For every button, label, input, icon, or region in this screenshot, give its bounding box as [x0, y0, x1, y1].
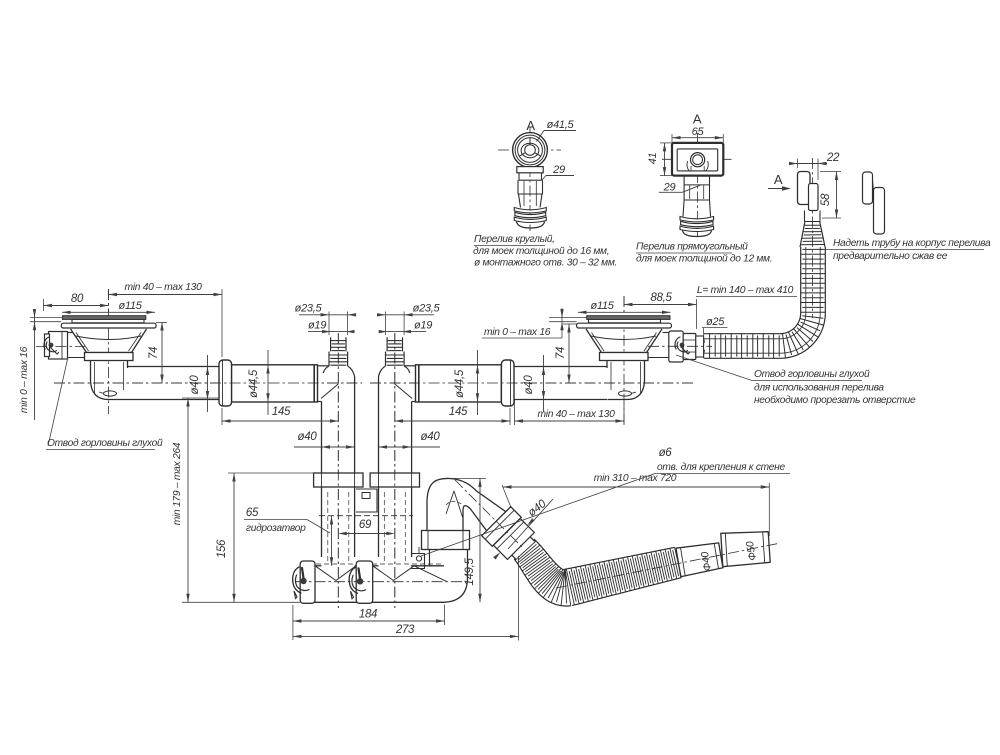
svg-text:ø6: ø6 [659, 447, 673, 459]
svg-text:для моек толщиной до 12 мм.: для моек толщиной до 12 мм. [636, 254, 772, 265]
svg-text:29: 29 [552, 164, 565, 176]
svg-text:65: 65 [692, 126, 705, 138]
svg-text:ø115: ø115 [590, 300, 614, 312]
svg-text:для моек толщиной до 16 мм,: для моек толщиной до 16 мм, [473, 246, 609, 257]
svg-text:min 40 – max 130: min 40 – max 130 [537, 409, 615, 420]
svg-text:58: 58 [820, 193, 832, 206]
svg-text:предварительно сжав ее: предварительно сжав ее [833, 251, 948, 262]
svg-text:для использования перелива: для использования перелива [754, 383, 884, 394]
svg-text:74: 74 [555, 347, 567, 359]
svg-text:A: A [774, 172, 783, 187]
svg-text:273: 273 [395, 624, 415, 636]
svg-text:min 310 – max 720: min 310 – max 720 [594, 473, 677, 484]
svg-text:ø монтажного отв. 30 – 32 мм.: ø монтажного отв. 30 – 32 мм. [474, 258, 617, 269]
svg-text:156: 156 [216, 539, 228, 558]
svg-text:184: 184 [359, 609, 377, 621]
svg-text:41: 41 [647, 153, 659, 165]
svg-text:22: 22 [826, 152, 840, 164]
svg-text:69: 69 [359, 519, 372, 531]
svg-text:ø40: ø40 [421, 431, 441, 443]
svg-text:A: A [526, 118, 535, 133]
svg-text:74: 74 [148, 347, 160, 359]
svg-text:ø40: ø40 [189, 375, 201, 395]
svg-text:min 40 – max 130: min 40 – max 130 [124, 282, 202, 293]
svg-text:ø40: ø40 [298, 431, 318, 443]
svg-text:ø25: ø25 [706, 316, 725, 328]
svg-text:необходимо прорезать отверстие: необходимо прорезать отверстие [754, 394, 916, 406]
svg-text:Перелив круглый,: Перелив круглый, [474, 234, 555, 245]
svg-text:149,5: 149,5 [464, 557, 476, 585]
svg-text:ø40: ø40 [523, 375, 535, 395]
svg-text:ø19: ø19 [308, 320, 326, 332]
svg-text:ø115: ø115 [118, 300, 142, 312]
svg-text:ø23,5: ø23,5 [295, 303, 323, 315]
svg-text:65: 65 [246, 507, 259, 519]
svg-text:145: 145 [272, 406, 291, 418]
svg-text:ø44,5: ø44,5 [248, 369, 260, 398]
svg-text:145: 145 [449, 406, 468, 418]
svg-text:min 0 – max 16: min 0 – max 16 [19, 346, 30, 413]
svg-text:ø44,5: ø44,5 [454, 369, 466, 398]
svg-text:ø41,5: ø41,5 [547, 119, 575, 131]
svg-text:80: 80 [71, 293, 84, 305]
svg-text:гидрозатвор: гидрозатвор [246, 523, 306, 534]
svg-text:min 0 – max 16: min 0 – max 16 [484, 327, 551, 338]
svg-text:Надеть трубу на корпус перелив: Надеть трубу на корпус перелива [833, 237, 991, 249]
svg-text:A: A [693, 112, 702, 127]
svg-text:ø19: ø19 [414, 320, 432, 332]
svg-text:Отвод горловины глухой: Отвод горловины глухой [47, 438, 163, 449]
svg-text:Перелив прямоугольный: Перелив прямоугольный [636, 242, 748, 253]
svg-text:88,5: 88,5 [650, 292, 672, 304]
svg-text:L= min 140 – max 410: L= min 140 – max 410 [697, 285, 794, 296]
svg-text:min 179 – max 264: min 179 – max 264 [172, 442, 183, 525]
svg-text:29: 29 [663, 182, 676, 194]
svg-text:отв. для крепления к стене: отв. для крепления к стене [657, 462, 785, 473]
svg-text:ø23,5: ø23,5 [413, 303, 441, 315]
svg-text:Отвод горловины глухой: Отвод горловины глухой [754, 369, 870, 380]
